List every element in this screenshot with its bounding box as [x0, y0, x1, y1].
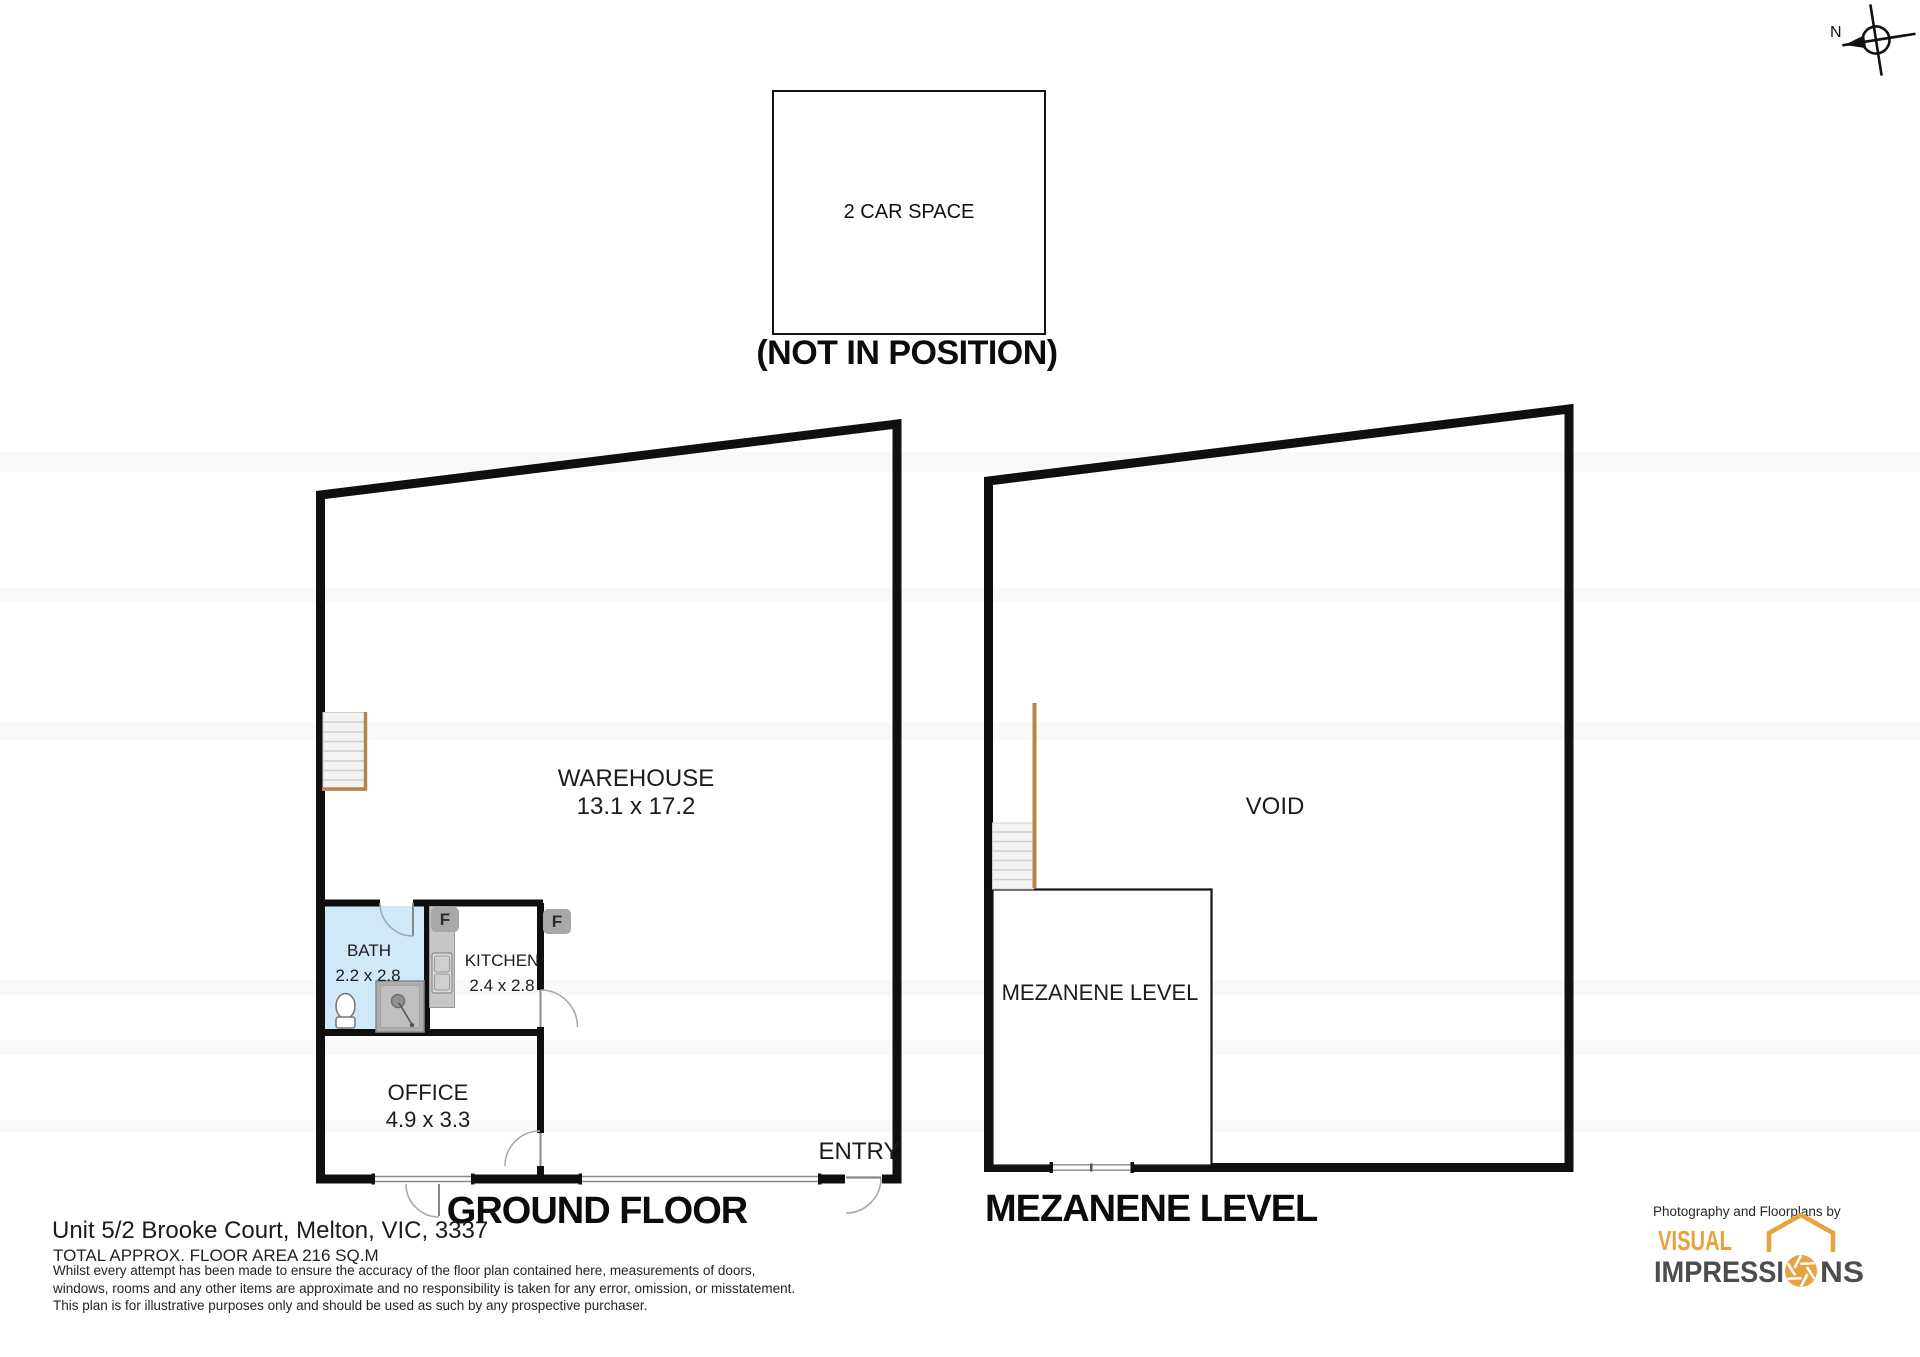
aperture-icon: [1784, 1255, 1817, 1287]
warehouse-label: WAREHOUSE: [558, 765, 714, 793]
mezzanine-room: [993, 890, 1212, 1166]
fixture-badge-f1: F: [431, 907, 459, 932]
toilet-icon: [336, 994, 355, 1029]
disclaimer-line: windows, rooms and any other items are a…: [53, 1280, 795, 1298]
car-space-label: 2 CAR SPACE: [844, 201, 975, 224]
warehouse-window: [579, 1174, 822, 1185]
shower-icon: [376, 981, 424, 1032]
floorplan-page: N 2 CAR SPACE (NOT IN POSITION) WAREHOUS…: [0, 0, 1920, 1357]
fixture-badge-f2: F: [543, 909, 571, 934]
visual-impressions-logo: Photography and Floorplans by VISUAL IMP…: [1648, 1200, 1920, 1320]
warehouse-dims: 13.1 x 17.2: [577, 793, 696, 821]
mezzanine-window: [1050, 1162, 1135, 1173]
office-window: [372, 1174, 475, 1185]
office-exterior-door: [406, 1184, 439, 1217]
kitchen-dims: 2.4 x 2.8: [469, 976, 534, 996]
kitchen-label: KITCHEN: [465, 951, 540, 971]
disclaimer-line: This plan is for illustrative purposes o…: [53, 1297, 795, 1315]
house-outline-icon: [1769, 1215, 1833, 1252]
ground-stairs: [322, 712, 367, 791]
compass-north-label: N: [1830, 24, 1842, 41]
void-label: VOID: [1246, 793, 1305, 821]
entry-label: ENTRY: [819, 1138, 900, 1166]
mezzanine-plan: [989, 409, 1570, 1173]
logo-impressions-right: NS: [1820, 1256, 1864, 1289]
car-space-box: 2 CAR SPACE: [772, 90, 1046, 335]
office-label: OFFICE: [388, 1080, 469, 1106]
not-in-position-note: (NOT IN POSITION): [756, 334, 1057, 373]
mezzanine-stairs: [993, 703, 1035, 889]
entry-door: [845, 1174, 882, 1214]
bath-label: BATH: [347, 941, 391, 961]
disclaimer-block: Whilst every attempt has been made to en…: [53, 1262, 795, 1315]
kitchen-door: [541, 990, 578, 1027]
logo-visual-text: VISUAL: [1658, 1225, 1732, 1256]
logo-tagline: Photography and Floorplans by: [1653, 1204, 1841, 1219]
mezzanine-title: MEZANENE LEVEL: [985, 1188, 1317, 1231]
bath-dims: 2.2 x 2.8: [335, 966, 400, 986]
office-dims: 4.9 x 3.3: [386, 1107, 470, 1133]
logo-impressions-left: IMPRESSI: [1654, 1256, 1784, 1289]
compass-icon: N: [1818, 2, 1920, 80]
disclaimer-line: Whilst every attempt has been made to en…: [53, 1262, 795, 1280]
office-wall-door: [505, 1036, 541, 1180]
ground-floor-title: GROUND FLOOR: [447, 1190, 747, 1233]
mezzanine-room-label: MEZANENE LEVEL: [1002, 980, 1199, 1006]
property-address: Unit 5/2 Brooke Court, Melton, VIC, 3337: [52, 1217, 488, 1245]
